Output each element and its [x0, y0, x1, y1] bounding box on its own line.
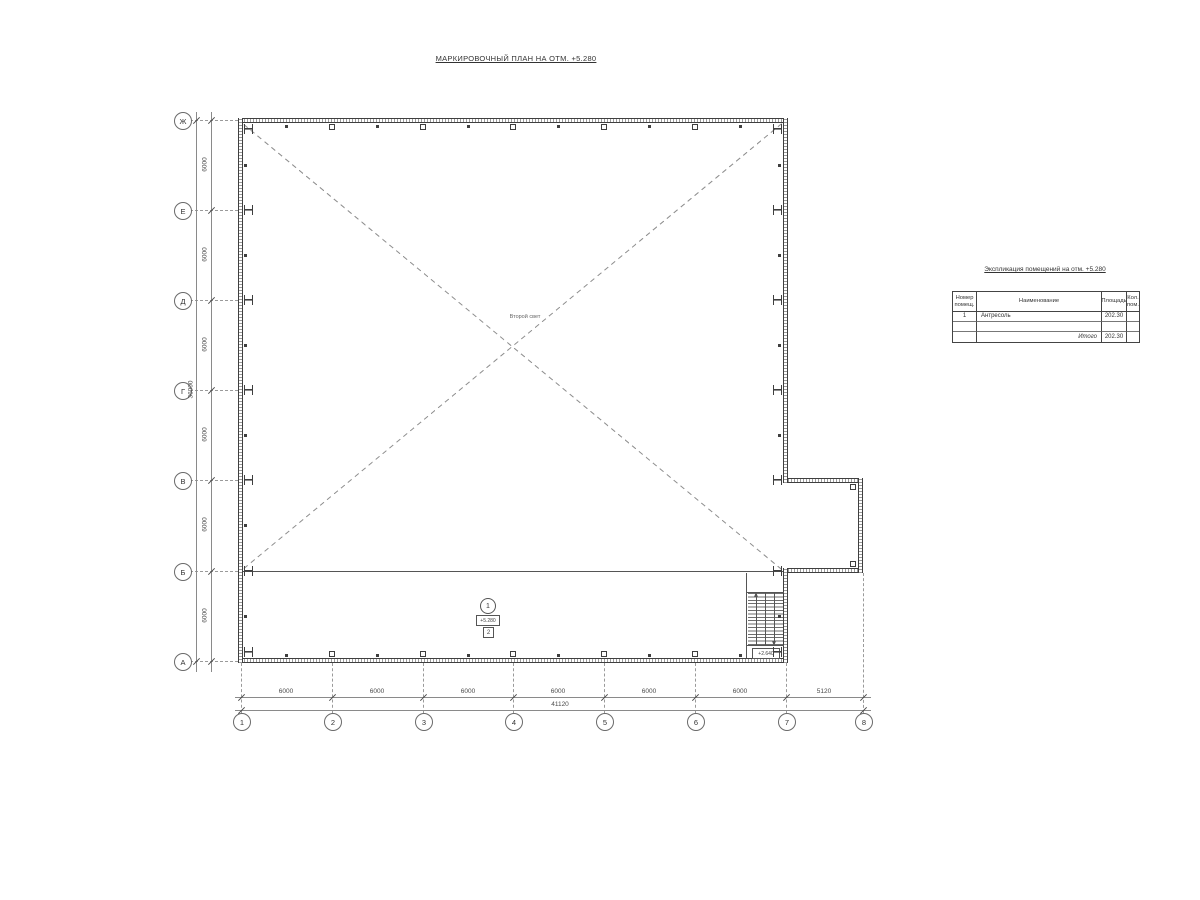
spec-cell-area: 202.30 — [1101, 312, 1126, 322]
post-dot — [244, 344, 247, 347]
spec-header-name: Наименование — [976, 292, 1101, 312]
spec-cell-empty — [953, 332, 976, 342]
spec-table-title: Экспликация помещений на отм. +5.280 — [955, 266, 1135, 273]
room-number-bubble: 1 — [480, 598, 496, 614]
ibeam-column-icon — [773, 566, 782, 576]
post-dot — [778, 615, 781, 618]
stair-up-path-line — [756, 594, 757, 645]
post-dot — [244, 434, 247, 437]
axis-bubble-col: 2 — [324, 713, 342, 731]
post-dot — [244, 524, 247, 527]
dim-line-left-segments — [211, 112, 212, 672]
spec-cell-empty — [953, 322, 976, 332]
spec-cell-empty — [976, 322, 1101, 332]
dim-value: 6000 — [202, 325, 209, 365]
wall-bump-right — [858, 478, 863, 573]
axis-bubble-row: В — [174, 472, 192, 490]
ibeam-column-icon — [773, 295, 782, 305]
spec-table: Номер помещ. Наименование Площадь Кол. п… — [952, 291, 1140, 343]
wall-left — [238, 118, 243, 663]
post-dot — [376, 654, 379, 657]
axis-bubble-col: 1 — [233, 713, 251, 731]
column-square — [692, 124, 698, 130]
axis-bubble-col: 6 — [687, 713, 705, 731]
post-dot — [244, 164, 247, 167]
dim-value: 6000 — [266, 688, 306, 695]
dim-value: 6000 — [357, 688, 397, 695]
column-square — [420, 651, 426, 657]
void-label: Второй свет — [490, 314, 560, 320]
wall-bump-top — [788, 478, 863, 483]
post-dot — [648, 125, 651, 128]
post-dot — [739, 125, 742, 128]
dim-value: 6000 — [202, 505, 209, 545]
wall-right-upper — [783, 118, 788, 483]
ibeam-column-icon — [773, 475, 782, 485]
ibeam-column-icon — [773, 647, 782, 657]
dim-value: 6000 — [202, 415, 209, 455]
axis-line — [786, 663, 787, 713]
dim-value: 6000 — [202, 145, 209, 185]
post-dot — [739, 654, 742, 657]
column-square — [510, 124, 516, 130]
spec-total-label: Итого — [976, 332, 1101, 342]
stair-down-arrow-icon — [772, 641, 776, 646]
axis-bubble-col: 3 — [415, 713, 433, 731]
drawing-sheet: МАРКИРОВОЧНЫЙ ПЛАН НА ОТМ. +5.280 Второй… — [0, 0, 1200, 900]
axis-line — [190, 210, 238, 211]
axis-line — [190, 390, 238, 391]
axis-bubble-row: Б — [174, 563, 192, 581]
dim-value: 6000 — [629, 688, 669, 695]
dim-value: 6000 — [202, 596, 209, 636]
stair-down-path-line — [774, 593, 775, 643]
column-square — [510, 651, 516, 657]
axis-bubble-row: А — [174, 653, 192, 671]
dim-total-value: 36000 — [188, 370, 195, 410]
stair-up-arrow-icon — [754, 592, 758, 597]
wall-right-lower — [783, 568, 788, 663]
post-dot — [285, 125, 288, 128]
ibeam-column-icon — [244, 566, 253, 576]
spec-total-area: 202.30 — [1101, 332, 1126, 342]
plan-title: МАРКИРОВОЧНЫЙ ПЛАН НА ОТМ. +5.280 — [410, 54, 622, 63]
column-square — [329, 651, 335, 657]
post-dot — [285, 654, 288, 657]
ibeam-column-icon — [244, 124, 253, 134]
post-dot — [244, 254, 247, 257]
post-dot — [467, 654, 470, 657]
post-dot — [778, 164, 781, 167]
dim-total-value: 41120 — [540, 701, 580, 708]
post-dot — [467, 125, 470, 128]
axis-bubble-col: 7 — [778, 713, 796, 731]
column-square — [601, 651, 607, 657]
axis-line — [604, 663, 605, 713]
column-square — [420, 124, 426, 130]
mezzanine-edge-line — [243, 571, 783, 572]
dim-value: 6000 — [448, 688, 488, 695]
axis-line — [241, 663, 242, 713]
axis-line — [695, 663, 696, 713]
wall-bump-bottom — [788, 568, 863, 573]
axis-bubble-col: 8 — [855, 713, 873, 731]
ibeam-column-icon — [244, 295, 253, 305]
axis-line — [190, 480, 238, 481]
room-elevation-label: +5.280 — [476, 615, 500, 626]
ibeam-column-icon — [773, 205, 782, 215]
axis-bubble-row: Д — [174, 292, 192, 310]
dim-line-left-total — [196, 112, 197, 672]
spec-header-area: Площадь — [1101, 292, 1126, 312]
dim-value: 6000 — [202, 235, 209, 275]
post-dot — [557, 125, 560, 128]
axis-bubble-row: Ж — [174, 112, 192, 130]
wall-top — [238, 118, 788, 123]
spec-cell-name: Антресоль — [976, 312, 1101, 322]
post-dot — [778, 434, 781, 437]
ibeam-column-icon — [244, 475, 253, 485]
axis-line — [863, 573, 864, 713]
column-square — [692, 651, 698, 657]
post-dot — [648, 654, 651, 657]
post-dot — [778, 254, 781, 257]
stair-bottom-line — [747, 645, 784, 646]
dim-value: 5120 — [804, 688, 844, 695]
ibeam-column-icon — [773, 385, 782, 395]
ibeam-column-icon — [244, 385, 253, 395]
post-dot — [376, 125, 379, 128]
post-dot — [557, 654, 560, 657]
ibeam-column-icon — [244, 647, 253, 657]
spec-cell-empty — [1126, 322, 1139, 332]
floor-type-mark: 2 — [483, 627, 494, 638]
spec-header-number: Номер помещ. — [953, 292, 976, 312]
column-square — [850, 484, 856, 490]
axis-line — [190, 300, 238, 301]
dim-value: 6000 — [538, 688, 578, 695]
axis-line — [423, 663, 424, 713]
spec-cell-empty — [1101, 322, 1126, 332]
axis-line — [332, 663, 333, 713]
spec-cell-number: 1 — [953, 312, 976, 322]
post-dot — [244, 615, 247, 618]
post-dot — [778, 344, 781, 347]
spec-cell-empty — [1126, 332, 1139, 342]
column-square — [329, 124, 335, 130]
spec-header-count: Кол. пом. — [1126, 292, 1139, 312]
spec-cell-count — [1126, 312, 1139, 322]
axis-bubble-col: 5 — [596, 713, 614, 731]
axis-line — [190, 571, 238, 572]
dim-value: 6000 — [720, 688, 760, 695]
ibeam-column-icon — [244, 205, 253, 215]
column-square — [601, 124, 607, 130]
axis-bubble-col: 4 — [505, 713, 523, 731]
ibeam-column-icon — [773, 124, 782, 134]
axis-bubble-row: Е — [174, 202, 192, 220]
column-square — [850, 561, 856, 567]
axis-line — [513, 663, 514, 713]
stair-flight-left — [748, 593, 766, 645]
dim-line-bottom-total — [235, 710, 871, 711]
